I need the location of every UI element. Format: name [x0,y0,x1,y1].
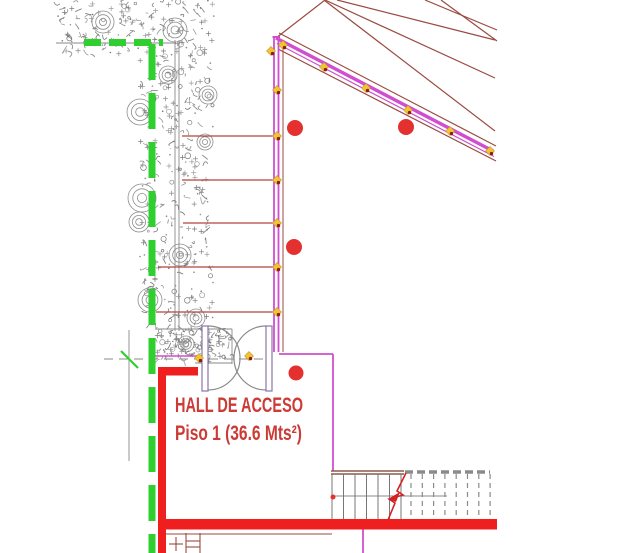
drawing-layers [54,0,497,553]
room-name-label: HALL DE ACCESO [175,394,303,417]
floor-plan-canvas: HALL DE ACCESO Piso 1 (36.6 Mts²) [0,0,628,553]
room-area-label: Piso 1 (36.6 Mts²) [175,422,302,445]
cad-drawing-viewport[interactable]: HALL DE ACCESO Piso 1 (36.6 Mts²) [0,0,628,553]
